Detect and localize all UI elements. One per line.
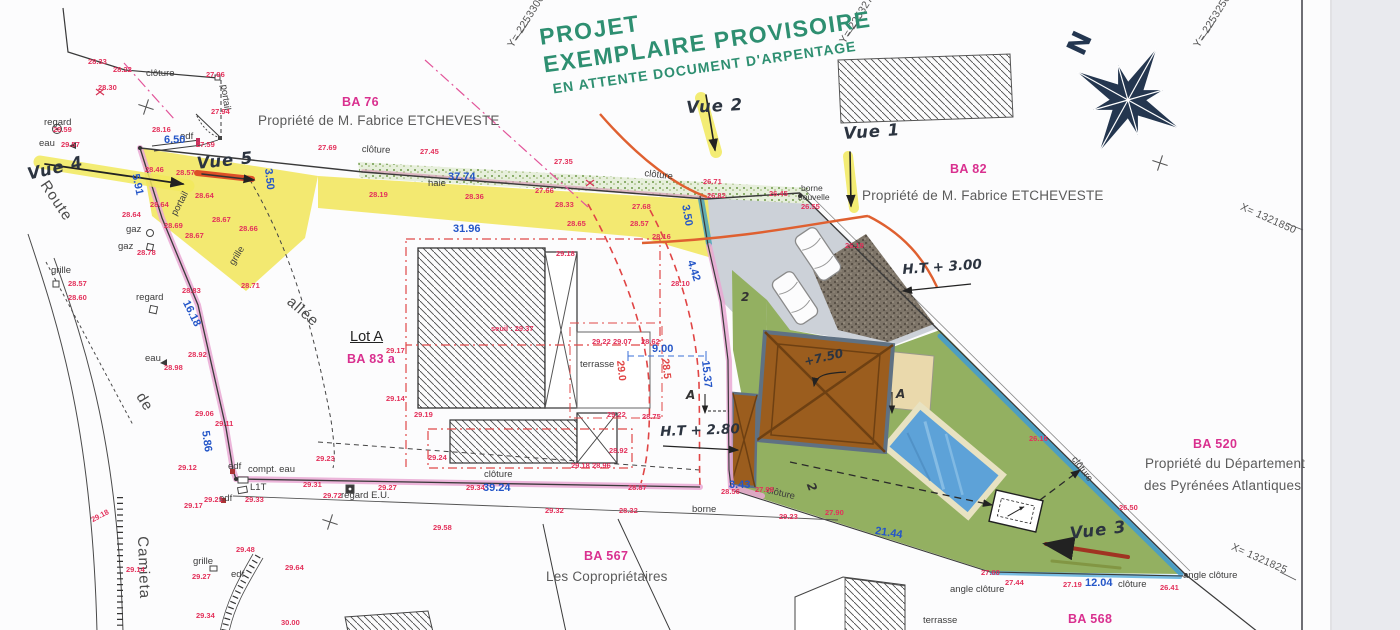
spot-elevation: 27.59 <box>196 141 215 149</box>
feature-label: borne <box>692 505 716 515</box>
spot-elevation: 26.71 <box>703 178 722 186</box>
contour-label: 28.5 <box>660 358 673 379</box>
spot-elevation: 28.30 <box>98 84 117 92</box>
spot-elevation: 27.66 <box>535 187 554 195</box>
spot-elevation: 26.41 <box>1160 584 1179 592</box>
spot-elevation: 28.36 <box>465 193 484 201</box>
feature-label: clôture <box>1118 580 1147 590</box>
plan-linework <box>0 0 1400 630</box>
dimension-label: 15.37 <box>699 360 713 389</box>
spot-elevation: 28.92 <box>188 351 207 359</box>
spot-elevation: 27.44 <box>1005 579 1024 587</box>
vue-annotation-2: Vue 2 <box>686 97 744 116</box>
spot-elevation: 28.78 <box>137 249 156 257</box>
spot-elevation: 26.82 <box>707 192 726 200</box>
spot-elevation: 28.67 <box>185 232 204 240</box>
spot-elevation: 26.19 <box>845 242 864 250</box>
owner-label-ba76: Propriété de M. Fabrice ETCHEVESTE <box>258 114 500 128</box>
parcel-label-ba76: BA 76 <box>342 96 379 109</box>
parcel-label-ba82: BA 82 <box>950 163 987 176</box>
spot-elevation: seuil : 29.37 <box>491 325 534 333</box>
feature-label: regard E.U. <box>341 491 390 501</box>
spot-elevation: 28.83 <box>182 287 201 295</box>
feature-label: gaz <box>118 242 133 252</box>
dimension-label: 3.50 <box>262 168 275 190</box>
feature-label: terrasse <box>580 360 614 370</box>
spot-elevation: 29.18 <box>556 250 575 258</box>
spot-elevation: 28.64 <box>150 201 169 209</box>
spot-elevation: 28.56 <box>721 488 740 496</box>
hatched-building-sw <box>345 611 433 630</box>
page-edge <box>1302 0 1400 630</box>
spot-elevation: 29.34 <box>196 612 215 620</box>
feature-label: clôture <box>484 470 513 480</box>
building-south <box>795 577 905 630</box>
spot-elevation: 29.31 <box>303 481 322 489</box>
spot-elevation: 26.50 <box>1119 504 1138 512</box>
dimension-label: 31.96 <box>453 224 481 235</box>
handwritten-mark: 2 <box>741 291 749 303</box>
main-house <box>406 239 662 468</box>
feature-label: compt. eau <box>248 465 295 475</box>
hatched-building-ne <box>838 54 1013 123</box>
dimension-label: 12.04 <box>1085 578 1113 589</box>
spot-elevation: 26.16 <box>1029 435 1048 443</box>
parcel-label-ba520: BA 520 <box>1193 438 1237 451</box>
feature-label: eau <box>145 354 161 364</box>
survey-plan-page: clôtureportailregardeauedfgazgazgrillepo… <box>0 0 1400 630</box>
spot-elevation: 29.12 <box>178 464 197 472</box>
dimension-label: 5.86 <box>199 430 213 453</box>
spot-elevation: 29.14 <box>126 566 145 574</box>
parcel-label-ba83a: BA 83 a <box>347 353 395 366</box>
spot-elevation: 28.67 <box>212 216 231 224</box>
feature-label: clôture <box>146 69 175 79</box>
spot-elevation: 27.98 <box>755 486 774 494</box>
feature-label: nouvelle <box>798 193 830 202</box>
spot-elevation: 27.35 <box>554 158 573 166</box>
handwritten-mark: A <box>896 388 905 400</box>
spot-elevation: 29.14 <box>386 395 405 403</box>
spot-elevation: 26.55 <box>801 203 820 211</box>
spot-elevation: 28.32 <box>619 507 638 515</box>
spot-elevation: 29.57 <box>61 141 80 149</box>
spot-elevation: 26.45 <box>769 190 788 198</box>
spot-elevation: 29.33 <box>245 496 264 504</box>
spot-elevation: 28.75 <box>642 413 661 421</box>
lot-a-label: Lot A <box>350 330 383 345</box>
spot-elevation: 28.71 <box>241 282 260 290</box>
dimension-label: 6.50 <box>164 135 185 146</box>
spot-elevation: 28.65 <box>567 220 586 228</box>
spot-elevation: 28.60 <box>68 294 87 302</box>
feature-label: eau <box>39 139 55 149</box>
spot-elevation: 29.07 <box>613 338 632 346</box>
feature-label: angle clôture <box>1183 571 1237 581</box>
spot-elevation: 27.94 <box>211 108 230 116</box>
spot-elevation: 27.45 <box>420 148 439 156</box>
spot-elevation: 28.22 <box>113 66 132 74</box>
spot-elevation: 29.58 <box>433 524 452 532</box>
spot-elevation: 29.34 <box>466 484 485 492</box>
spot-elevation: 28.92 <box>609 447 628 455</box>
feature-label: terrasse <box>923 616 957 626</box>
spot-elevation: 28.62 <box>641 338 660 346</box>
parcel-label-ba567: BA 567 <box>584 550 628 563</box>
dimension-label: 37.74 <box>448 172 476 183</box>
spot-elevation: 27.96 <box>206 71 225 79</box>
spot-elevation: 29.27 <box>192 573 211 581</box>
owner-label-ba567: Les Copropriétaires <box>546 570 668 584</box>
spot-elevation: 29.17 <box>184 502 203 510</box>
spot-elevation: 28.66 <box>239 225 258 233</box>
spot-elevation: 27.60 <box>981 569 1000 577</box>
spot-elevation: 29.23 <box>204 496 223 504</box>
handwritten-mark: A <box>686 389 695 401</box>
feature-label: clôture <box>362 145 391 155</box>
spot-elevation: 28.59 <box>53 126 72 134</box>
spot-elevation: 29.23 <box>316 455 335 463</box>
spot-elevation: 28.46 <box>145 166 164 174</box>
spot-elevation: 28.64 <box>195 192 214 200</box>
spot-elevation: 29.18 <box>571 462 590 470</box>
feature-label: angle clôture <box>950 585 1004 595</box>
contour-label: 29.0 <box>615 360 628 381</box>
spot-elevation: 29.22 <box>607 411 626 419</box>
height-note-280: H.T + 2.80 <box>660 423 740 439</box>
spot-elevation: 28.96 <box>592 462 611 470</box>
parcel-label-ba568: BA 568 <box>1068 613 1112 626</box>
spot-elevation: 28.16 <box>652 233 671 241</box>
feature-label: haie <box>428 179 446 189</box>
spot-elevation: 28.57 <box>176 169 195 177</box>
feature-label: grille <box>193 557 213 567</box>
spot-elevation: 28.69 <box>164 222 183 230</box>
spot-elevation: 29.27 <box>378 484 397 492</box>
spot-elevation: 28.98 <box>164 364 183 372</box>
spot-elevation: 29.64 <box>285 564 304 572</box>
vue-annotation-1: Vue 1 <box>843 122 901 142</box>
spot-elevation: 29.32 <box>545 507 564 515</box>
spot-elevation: 29.72 <box>323 492 342 500</box>
spot-elevation: 27.69 <box>318 144 337 152</box>
spot-elevation: 29.24 <box>428 454 447 462</box>
dimension-label: 3.50 <box>679 204 694 227</box>
feature-label: edf <box>228 462 241 472</box>
feature-label: edf <box>231 570 244 580</box>
dimension-label: 39.24 <box>483 483 511 494</box>
spot-elevation: 28.33 <box>88 58 107 66</box>
spot-elevation: 28.64 <box>122 211 141 219</box>
spot-elevation: 27.68 <box>632 203 651 211</box>
spot-elevation: 29.06 <box>195 410 214 418</box>
feature-label: L1T <box>250 483 266 493</box>
spot-elevation: 28.57 <box>68 280 87 288</box>
spot-elevation: 27.90 <box>825 509 844 517</box>
spot-elevation: 28.19 <box>369 191 388 199</box>
spot-elevation: 28.16 <box>152 126 171 134</box>
spot-elevation: 27.19 <box>1063 581 1082 589</box>
spot-elevation: 29.23 <box>779 513 798 521</box>
feature-label: grille <box>51 266 71 276</box>
spot-elevation: 29.22 <box>592 338 611 346</box>
owner-label-ba520-1: Propriété du Département <box>1145 457 1305 471</box>
spot-elevation: 28.33 <box>555 201 574 209</box>
spot-elevation: 28.87 <box>628 484 647 492</box>
feature-label: regard <box>136 293 163 303</box>
spot-elevation: 29.11 <box>215 420 233 428</box>
spot-elevation: 30.00 <box>281 619 300 627</box>
feature-label: gaz <box>126 225 141 235</box>
owner-label-ba520-2: des Pyrénées Atlantiques <box>1144 479 1301 493</box>
lot-a-name: Lot A <box>350 329 383 345</box>
spot-elevation: 29.48 <box>236 546 255 554</box>
owner-label-ba82: Propriété de M. Fabrice ETCHEVESTE <box>862 189 1104 203</box>
spot-elevation: 28.57 <box>630 220 649 228</box>
spot-elevation: 28.10 <box>671 280 690 288</box>
spot-elevation: 29.19 <box>414 411 433 419</box>
